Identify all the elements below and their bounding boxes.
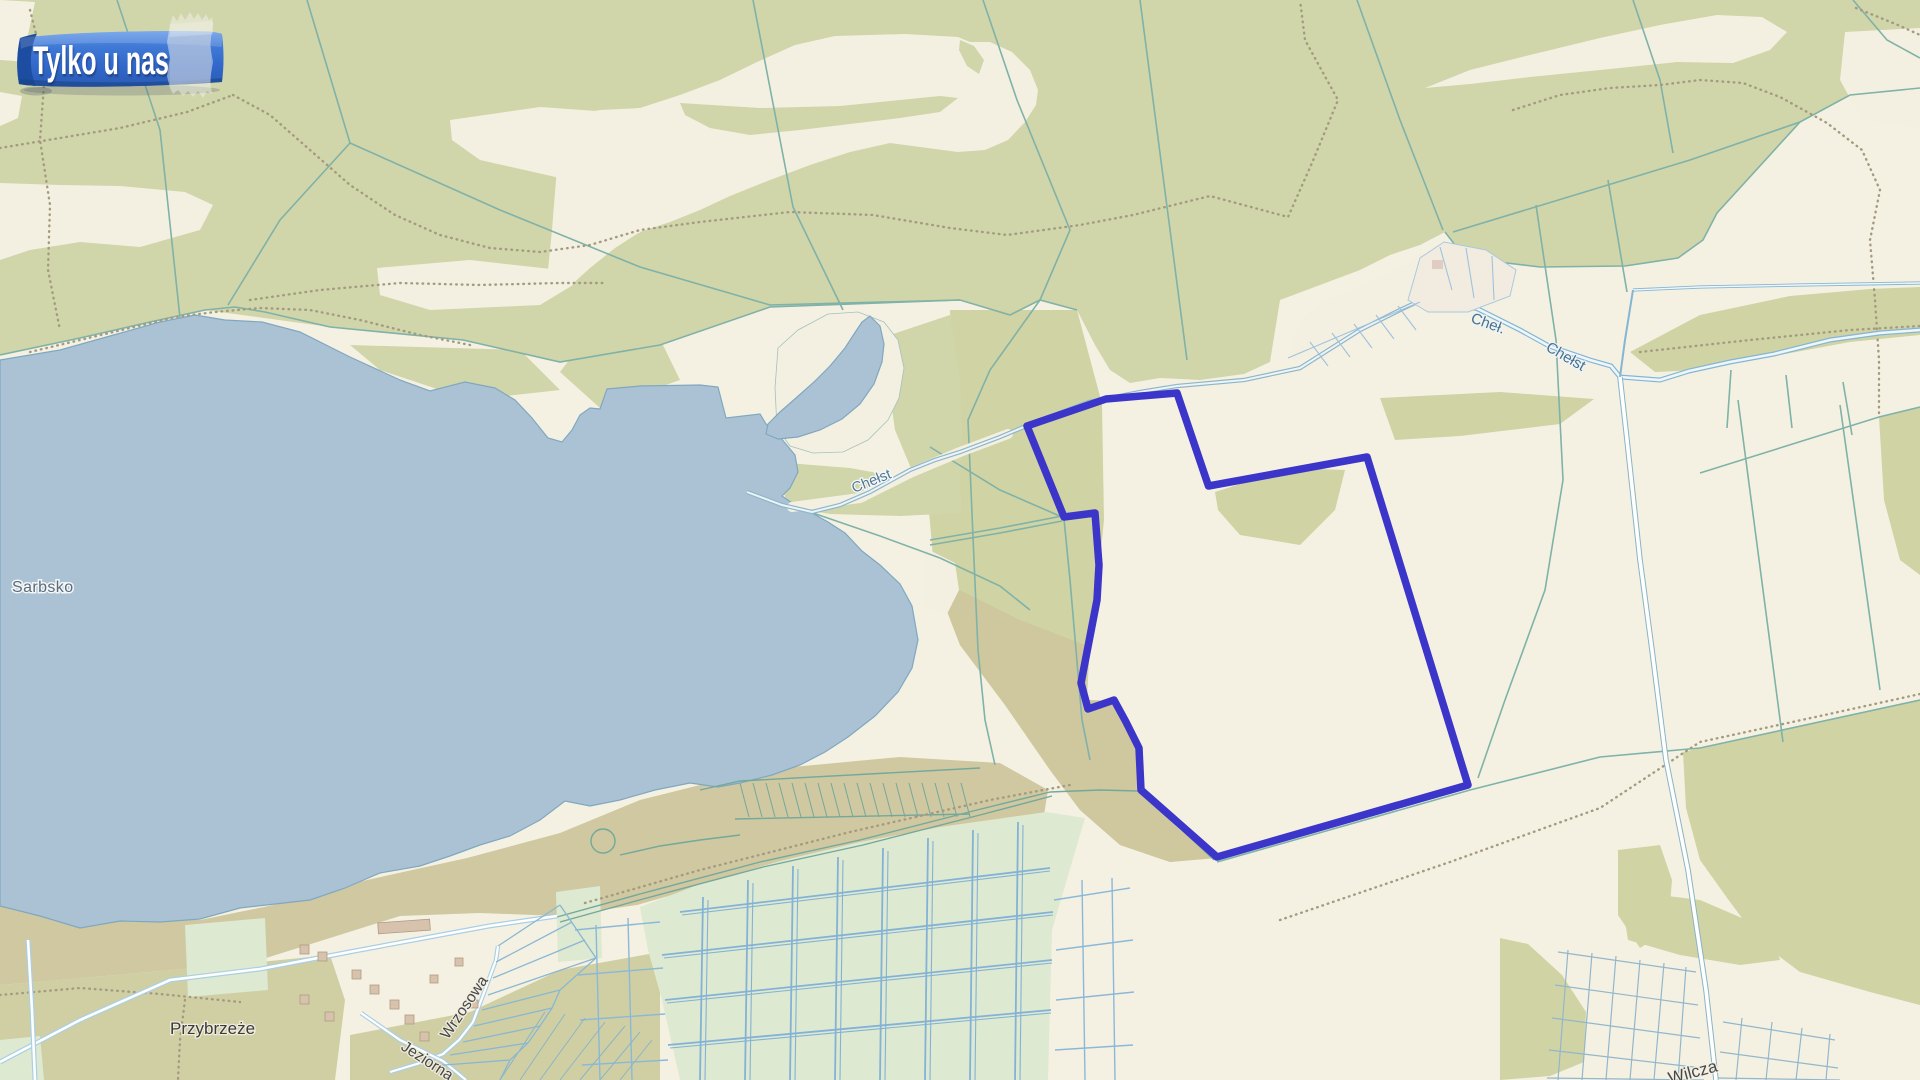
svg-text:Sarbsko: Sarbsko	[12, 579, 74, 596]
svg-text:Tylko u nas: Tylko u nas	[33, 39, 169, 83]
svg-text:Przybrzeże: Przybrzeże	[170, 1019, 255, 1038]
